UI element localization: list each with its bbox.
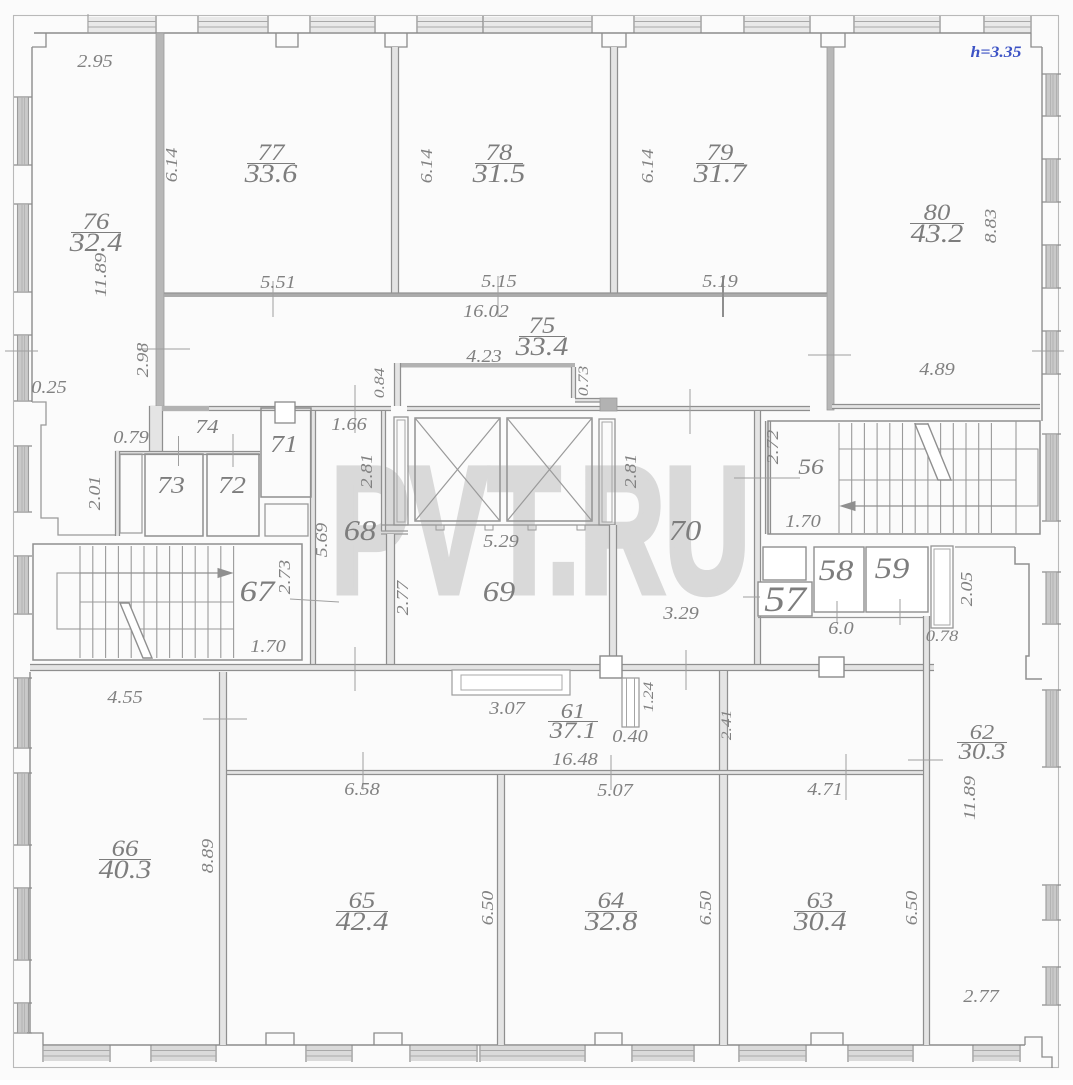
svg-text:3.07: 3.07 xyxy=(488,698,526,718)
svg-text:69: 69 xyxy=(483,577,516,608)
svg-text:56: 56 xyxy=(798,454,824,479)
svg-text:2.73: 2.73 xyxy=(275,560,294,595)
svg-text:3.29: 3.29 xyxy=(662,603,699,623)
svg-text:5.29: 5.29 xyxy=(483,531,519,551)
svg-text:31.5: 31.5 xyxy=(471,159,525,188)
svg-text:67: 67 xyxy=(240,575,277,608)
svg-text:11.89: 11.89 xyxy=(960,775,979,820)
svg-text:16.02: 16.02 xyxy=(463,301,509,321)
svg-text:5.19: 5.19 xyxy=(702,271,738,291)
svg-text:40.3: 40.3 xyxy=(99,855,152,884)
svg-text:30.4: 30.4 xyxy=(792,907,846,936)
svg-text:0.40: 0.40 xyxy=(612,726,648,746)
svg-text:0.84: 0.84 xyxy=(372,367,388,398)
svg-text:6.14: 6.14 xyxy=(638,148,657,183)
svg-text:2.81: 2.81 xyxy=(621,454,640,489)
svg-text:30.3: 30.3 xyxy=(957,739,1005,764)
svg-text:5.15: 5.15 xyxy=(481,271,517,291)
svg-text:57: 57 xyxy=(764,579,808,619)
svg-text:0.79: 0.79 xyxy=(113,427,149,447)
svg-text:33.4: 33.4 xyxy=(514,332,568,361)
svg-text:6.14: 6.14 xyxy=(162,147,181,182)
svg-text:8.83: 8.83 xyxy=(981,209,1000,244)
svg-text:4.23: 4.23 xyxy=(466,346,502,366)
svg-text:2.95: 2.95 xyxy=(77,51,113,71)
svg-text:6.0: 6.0 xyxy=(828,618,854,638)
svg-text:6.58: 6.58 xyxy=(344,779,380,799)
svg-text:43.2: 43.2 xyxy=(911,219,964,248)
svg-text:2.98: 2.98 xyxy=(133,342,152,377)
svg-text:68: 68 xyxy=(344,516,377,547)
svg-text:2.81: 2.81 xyxy=(357,454,376,489)
svg-text:11.89: 11.89 xyxy=(91,252,110,297)
svg-text:4.55: 4.55 xyxy=(107,687,143,707)
svg-text:2.41: 2.41 xyxy=(719,710,735,740)
svg-text:5.69: 5.69 xyxy=(312,522,331,557)
svg-text:h=3.35: h=3.35 xyxy=(971,44,1022,61)
svg-text:2.05: 2.05 xyxy=(957,572,976,607)
svg-text:5.07: 5.07 xyxy=(597,780,634,800)
svg-text:2.77: 2.77 xyxy=(963,986,1000,1006)
svg-text:6.14: 6.14 xyxy=(417,148,436,183)
svg-text:58: 58 xyxy=(819,554,854,587)
svg-text:72: 72 xyxy=(218,473,246,499)
svg-text:70: 70 xyxy=(669,516,702,547)
svg-text:37.1: 37.1 xyxy=(548,718,596,743)
svg-text:33.6: 33.6 xyxy=(243,159,297,188)
svg-text:0.73: 0.73 xyxy=(576,366,592,396)
svg-text:42.4: 42.4 xyxy=(336,907,389,936)
svg-text:2.77: 2.77 xyxy=(393,579,412,615)
svg-text:31.7: 31.7 xyxy=(692,159,747,188)
svg-text:1.70: 1.70 xyxy=(250,636,286,656)
svg-text:59: 59 xyxy=(875,552,910,585)
svg-text:2.01: 2.01 xyxy=(85,476,104,511)
svg-text:4.89: 4.89 xyxy=(919,359,955,379)
svg-text:6.50: 6.50 xyxy=(696,890,715,925)
svg-text:8.89: 8.89 xyxy=(198,838,217,873)
svg-text:1.66: 1.66 xyxy=(331,414,367,434)
svg-text:73: 73 xyxy=(157,473,185,499)
svg-text:4.71: 4.71 xyxy=(807,779,843,799)
svg-text:74: 74 xyxy=(195,416,218,438)
svg-text:0.25: 0.25 xyxy=(31,377,67,397)
svg-text:5.51: 5.51 xyxy=(260,272,296,292)
svg-text:16.48: 16.48 xyxy=(552,749,598,769)
svg-text:6.50: 6.50 xyxy=(902,890,921,925)
svg-text:6.50: 6.50 xyxy=(478,890,497,925)
svg-text:1.24: 1.24 xyxy=(641,681,657,712)
svg-text:1.70: 1.70 xyxy=(785,511,821,531)
svg-text:32.8: 32.8 xyxy=(583,907,637,936)
svg-text:0.78: 0.78 xyxy=(926,628,959,645)
svg-text:2.72: 2.72 xyxy=(763,429,782,464)
svg-text:71: 71 xyxy=(270,432,298,458)
